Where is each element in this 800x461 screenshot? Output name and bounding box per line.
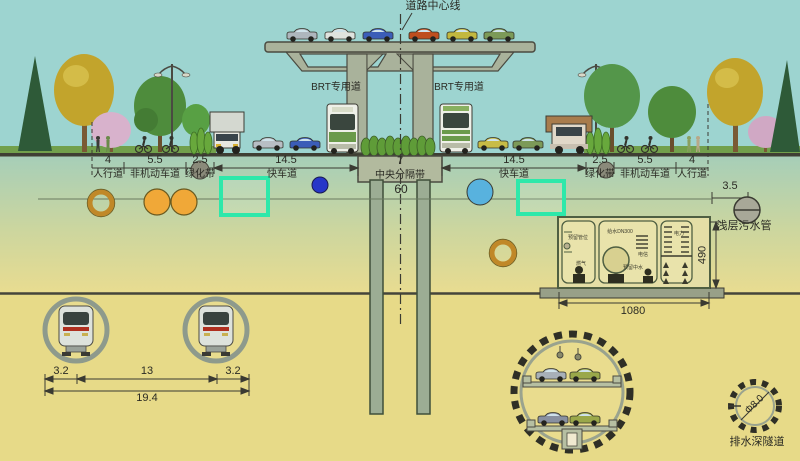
green-tree-icon	[648, 86, 696, 138]
dim-green-belt-left: 2.5	[192, 155, 207, 166]
metro-spacing-label: 13	[141, 366, 153, 377]
dim-sidewalk-left: 4	[105, 155, 111, 166]
dim-fast-lane-left: 14.5	[275, 155, 296, 166]
compartment-label: 燃气	[576, 262, 586, 267]
deep-tunnel-label: 排水深隧道	[730, 437, 785, 448]
compartment-label: 预留管位	[568, 236, 588, 241]
lane-name-fast-left: 快车道	[267, 170, 297, 180]
lane-name-fast-right: 快车道	[499, 170, 529, 180]
dim-median: 7	[397, 156, 403, 167]
sewer-pipe-label: 浅层污水管	[717, 221, 772, 232]
utility-box-highlight	[221, 178, 268, 215]
dim-sidewalk-right: 4	[689, 155, 695, 166]
lane-name-bike-left: 非机动车道	[130, 170, 180, 180]
pile	[370, 180, 383, 414]
pickup-truck-icon	[546, 116, 592, 154]
lane-name-sidewalk-right: 人行道	[677, 170, 707, 180]
metro-margin-left-label: 3.2	[53, 366, 68, 377]
compartment-label: 电信	[638, 253, 648, 258]
lane-name-sidewalk-left: 人行道	[93, 170, 123, 180]
compartment-label: 电力	[674, 232, 684, 237]
small-tree-icon	[182, 104, 210, 136]
median-shrubs	[361, 136, 435, 156]
brt-bus-icon	[327, 104, 358, 154]
brt-lane-label-left: BRT专用道	[311, 83, 361, 93]
corridor-width-label: 1080	[621, 306, 645, 317]
centerline-label: 道路中心线	[406, 1, 461, 12]
heat-pipe-icon	[144, 189, 170, 215]
compartment-label: 给水DN300	[607, 230, 633, 235]
total-width-label: 60	[394, 183, 407, 195]
box-truck-icon	[210, 112, 244, 154]
corridor-height-label: 490	[698, 246, 709, 264]
dim-green-belt-right: 2.5	[592, 155, 607, 166]
dim-bike-lane-right: 5.5	[637, 155, 652, 166]
lane-name-green-left: 绿化带	[185, 170, 215, 180]
brt-bus-icon	[440, 104, 472, 154]
road-tunnel	[514, 334, 630, 450]
yellow-tree-icon	[707, 58, 763, 126]
lane-name-green-right: 绿化带	[585, 170, 615, 180]
lane-name-bike-right: 非机动车道	[620, 170, 670, 180]
dim-bike-lane-left: 5.5	[147, 155, 162, 166]
road-cross-section-diagram: 道路中心线 BRT专用道 BRT专用道 4 5.5 2.5 14.5 7 14.…	[0, 0, 800, 461]
dim-fast-lane-right: 14.5	[503, 155, 524, 166]
corridor-base-slab	[540, 288, 724, 298]
rain-pipe-icon	[467, 179, 493, 205]
compartment-label: 预留中水	[623, 266, 643, 271]
heat-pipe-icon	[171, 189, 197, 215]
pile	[417, 180, 430, 414]
metro-margin-right-label: 3.2	[225, 366, 240, 377]
lane-name-median: 中央分隔带	[375, 171, 425, 181]
metro-total-label: 19.4	[136, 393, 157, 404]
water-pipe-icon	[312, 177, 328, 193]
utility-box-highlight	[518, 181, 564, 214]
sewer-offset-label: 3.5	[722, 181, 737, 192]
brt-lane-label-right: BRT专用道	[434, 83, 484, 93]
